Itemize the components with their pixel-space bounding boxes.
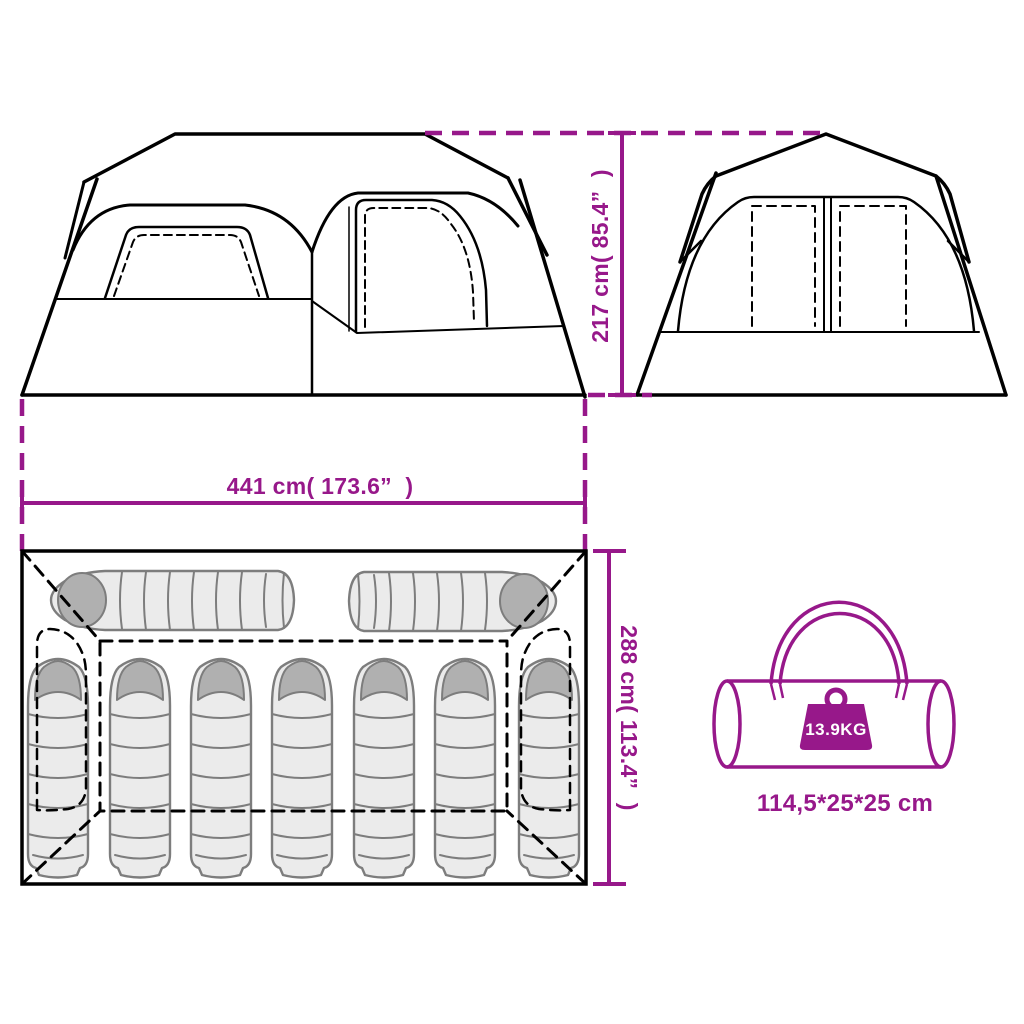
tent-floor-plan-icon — [22, 551, 586, 884]
packed-size-label: 114,5*25*25 cm — [695, 791, 995, 819]
height-dimension-label: 217 cm( 85.4” ) — [588, 116, 614, 396]
height-dimension — [425, 133, 830, 395]
sleeping-bag-horizontal-left-icon — [51, 571, 294, 630]
sleeping-bag-horizontal-right-icon — [349, 572, 556, 631]
diagram-line-art — [0, 0, 1024, 1024]
carry-bag-icon — [714, 602, 954, 767]
tent-dimension-diagram: 217 cm( 85.4” ) 441 cm( 173.6” ) 288 cm(… — [0, 0, 1024, 1024]
tent-front-view-icon — [22, 134, 585, 397]
tent-side-view-icon — [637, 134, 1006, 395]
weight-value-label: 13.9KG — [786, 721, 886, 741]
width-dimension-label: 441 cm( 173.6” ) — [140, 474, 500, 500]
depth-dimension-label: 288 cm( 113.4” ) — [615, 578, 641, 858]
